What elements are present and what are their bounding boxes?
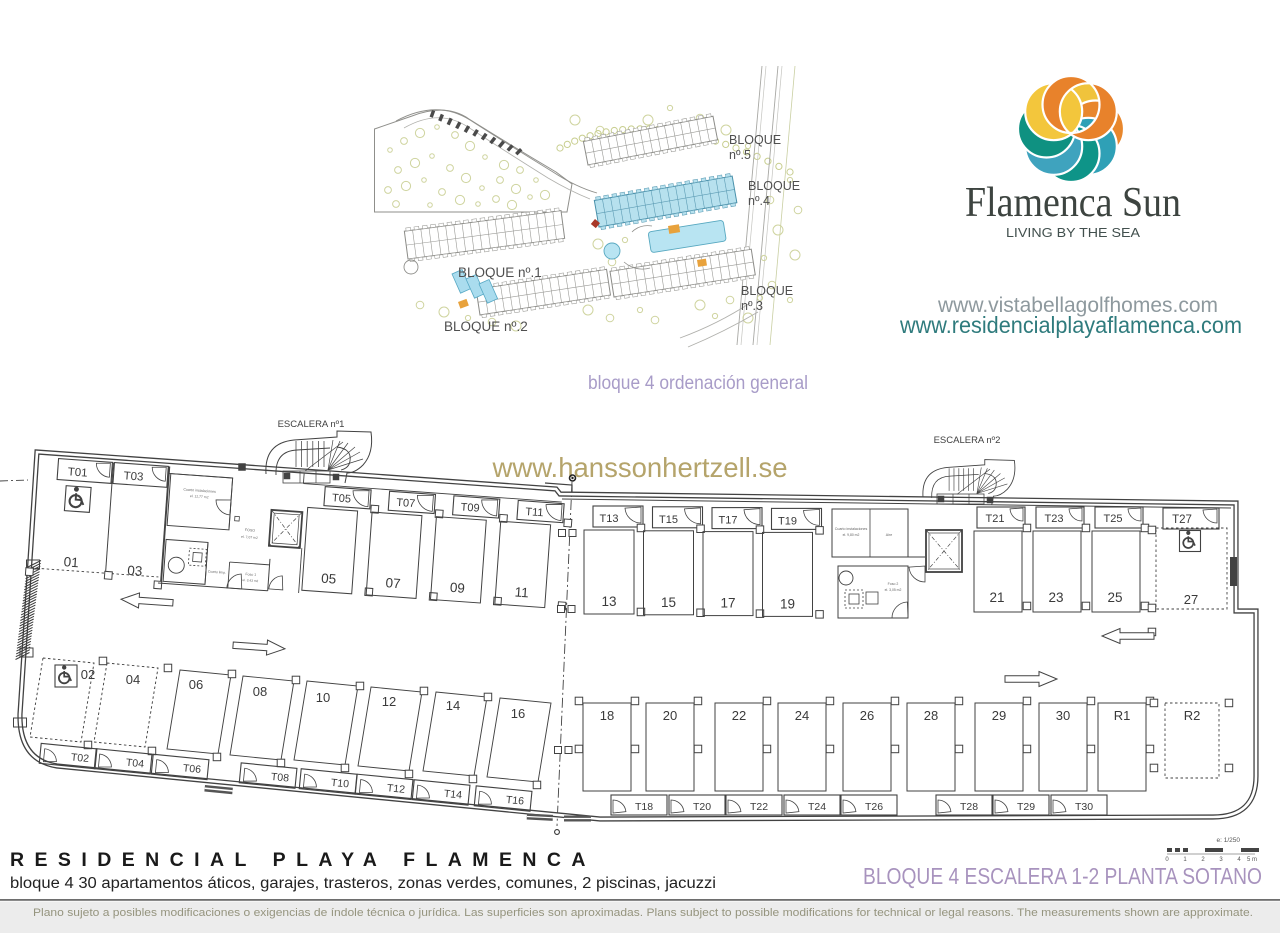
- svg-text:17: 17: [720, 596, 735, 611]
- svg-text:T27: T27: [1172, 514, 1192, 526]
- svg-text:T23: T23: [1045, 513, 1064, 525]
- svg-text:T26: T26: [865, 801, 883, 813]
- svg-text:13: 13: [601, 594, 616, 609]
- svg-text:bloque 4 ordenación general: bloque 4 ordenación general: [588, 373, 808, 394]
- svg-text:T17: T17: [719, 515, 738, 527]
- svg-text:27: 27: [1184, 592, 1198, 607]
- svg-text:30: 30: [1056, 708, 1070, 723]
- svg-text:12: 12: [382, 694, 396, 709]
- svg-text:T13: T13: [600, 513, 619, 525]
- svg-text:R1: R1: [1114, 708, 1131, 723]
- svg-text:28: 28: [924, 708, 938, 723]
- svg-text:Aire: Aire: [886, 533, 892, 537]
- svg-text:09: 09: [449, 580, 465, 596]
- svg-text:T10: T10: [330, 777, 349, 791]
- svg-text:BLOQUE: BLOQUE: [741, 284, 793, 298]
- svg-text:el. 3,05 m2: el. 3,05 m2: [885, 588, 902, 592]
- svg-text:T11: T11: [525, 506, 544, 519]
- svg-text:T03: T03: [123, 470, 144, 483]
- svg-text:05: 05: [321, 571, 337, 587]
- svg-text:T08: T08: [270, 771, 289, 785]
- svg-text:T28: T28: [960, 801, 978, 813]
- svg-text:FOSO: FOSO: [245, 528, 256, 533]
- svg-text:Flamenca Sun: Flamenca Sun: [965, 180, 1181, 226]
- svg-text:BLOQUE 4 ESCALERA 1-2 PLANTA S: BLOQUE 4 ESCALERA 1-2 PLANTA SOTANO: [863, 863, 1262, 889]
- svg-text:T14: T14: [443, 788, 462, 802]
- svg-text:nº.3: nº.3: [741, 299, 763, 313]
- svg-text:15: 15: [661, 595, 676, 610]
- svg-text:ESCALERA nº1: ESCALERA nº1: [278, 419, 345, 430]
- svg-text:R2: R2: [1184, 708, 1201, 723]
- svg-text:BLOQUE: BLOQUE: [729, 133, 781, 147]
- svg-text:01: 01: [63, 554, 79, 570]
- svg-text:BLOQUE nº.1: BLOQUE nº.1: [458, 265, 542, 280]
- svg-text:BLOQUE: BLOQUE: [748, 179, 800, 193]
- svg-text:nº.5: nº.5: [729, 148, 751, 162]
- svg-text:04: 04: [126, 672, 140, 687]
- svg-text:22: 22: [732, 708, 746, 723]
- svg-text:T30: T30: [1075, 801, 1093, 813]
- svg-text:19: 19: [780, 596, 795, 611]
- svg-text:Foso 1: Foso 1: [245, 572, 256, 577]
- svg-text:T22: T22: [750, 801, 768, 813]
- svg-text:23: 23: [1048, 590, 1063, 605]
- svg-text:bloque 4 30 apartamentos ático: bloque 4 30 apartamentos áticos, garajes…: [10, 875, 716, 892]
- svg-text:T06: T06: [182, 762, 201, 776]
- svg-text:21: 21: [989, 590, 1004, 605]
- svg-text:www.residencialplayaflamenca.c: www.residencialplayaflamenca.com: [899, 312, 1242, 338]
- svg-text:T09: T09: [460, 501, 480, 514]
- svg-text:08: 08: [253, 684, 267, 699]
- svg-text:24: 24: [795, 708, 809, 723]
- svg-text:02: 02: [81, 667, 95, 682]
- svg-text:ESCALERA nº2: ESCALERA nº2: [934, 435, 1001, 446]
- svg-text:RESIDENCIAL PLAYA FLAMENCA: RESIDENCIAL PLAYA FLAMENCA: [10, 849, 588, 871]
- svg-text:T21: T21: [986, 513, 1005, 525]
- svg-text:T01: T01: [67, 466, 88, 479]
- svg-text:el. 9,80 m2: el. 9,80 m2: [843, 533, 860, 537]
- svg-text:T24: T24: [808, 801, 826, 813]
- svg-text:18: 18: [600, 708, 614, 723]
- svg-text:29: 29: [992, 708, 1006, 723]
- svg-text:14: 14: [446, 698, 460, 713]
- svg-text:T18: T18: [635, 801, 653, 813]
- svg-text:www.hanssonhertzell.se: www.hanssonhertzell.se: [492, 452, 788, 483]
- svg-text:T15: T15: [659, 514, 678, 526]
- svg-text:BLOQUE nº.2: BLOQUE nº.2: [444, 319, 528, 334]
- svg-text:06: 06: [189, 677, 203, 692]
- svg-text:25: 25: [1107, 590, 1122, 605]
- svg-text:Foso 2: Foso 2: [888, 582, 899, 586]
- svg-text:e: 1/250: e: 1/250: [1217, 837, 1241, 844]
- svg-text:T29: T29: [1017, 801, 1035, 813]
- svg-text:LIVING BY THE SEA: LIVING BY THE SEA: [1006, 225, 1140, 240]
- svg-text:T04: T04: [125, 757, 144, 771]
- svg-text:T20: T20: [693, 801, 711, 813]
- svg-text:T16: T16: [505, 794, 524, 808]
- svg-text:T19: T19: [778, 515, 797, 527]
- svg-text:nº.4: nº.4: [748, 194, 770, 208]
- svg-text:10: 10: [316, 690, 330, 705]
- svg-text:11: 11: [514, 584, 529, 600]
- svg-text:T02: T02: [70, 751, 89, 765]
- svg-text:07: 07: [385, 575, 401, 591]
- svg-text:T05: T05: [332, 492, 352, 505]
- svg-text:Plano sujeto a posibles modifi: Plano sujeto a posibles modificaciones o…: [33, 907, 1253, 919]
- svg-text:Cuarto instalaciones: Cuarto instalaciones: [835, 527, 868, 531]
- svg-text:26: 26: [860, 708, 874, 723]
- svg-text:16: 16: [511, 706, 525, 721]
- svg-text:T25: T25: [1104, 513, 1123, 525]
- svg-text:03: 03: [127, 563, 143, 579]
- svg-text:20: 20: [663, 708, 677, 723]
- svg-text:T07: T07: [396, 497, 416, 510]
- svg-text:T12: T12: [386, 782, 405, 796]
